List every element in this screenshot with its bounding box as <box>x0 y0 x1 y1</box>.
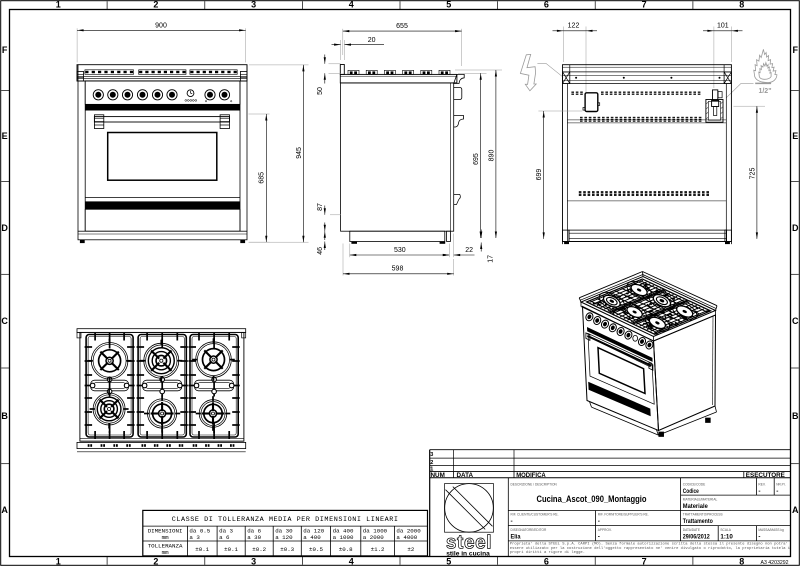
svg-text:46: 46 <box>317 247 324 255</box>
svg-text:725: 725 <box>749 168 756 180</box>
svg-text:4: 4 <box>349 0 354 10</box>
svg-text:8: 8 <box>739 556 744 566</box>
svg-text:5: 5 <box>446 0 451 10</box>
svg-text:±0.8: ±0.8 <box>339 546 353 553</box>
svg-text:F: F <box>792 45 798 55</box>
svg-text:945: 945 <box>296 147 303 159</box>
svg-text:±0.1: ±0.1 <box>224 546 238 553</box>
svg-text:1/2": 1/2" <box>758 88 771 95</box>
svg-text:29/06/2012: 29/06/2012 <box>683 534 710 541</box>
svg-text:2: 2 <box>430 460 433 466</box>
svg-text:±0.5: ±0.5 <box>309 546 323 553</box>
svg-text:530: 530 <box>394 247 406 254</box>
svg-text:Materiale: Materiale <box>683 503 708 510</box>
svg-text:RIF. FORNITORE/SUPPLIER'S RE.: RIF. FORNITORE/SUPPLIER'S RE. <box>598 513 649 517</box>
svg-text:890: 890 <box>488 150 495 162</box>
svg-text:CLASSE DI TOLLERANZA MEDIA PER: CLASSE DI TOLLERANZA MEDIA PER DIMENSION… <box>172 516 399 524</box>
svg-text:SCALA: SCALA <box>720 528 731 532</box>
svg-text:7: 7 <box>642 0 647 10</box>
svg-text:A: A <box>792 505 799 515</box>
svg-text:a 120: a 120 <box>275 534 293 541</box>
svg-text:mm: mm <box>162 534 169 541</box>
svg-text:±0.3: ±0.3 <box>280 546 294 553</box>
svg-text:a 3: a 3 <box>189 534 200 541</box>
svg-text:4: 4 <box>349 556 354 566</box>
svg-text:Trattamento: Trattamento <box>683 518 713 525</box>
svg-text:DESCRIZIONE / DESCRIPTION: DESCRIZIONE / DESCRIPTION <box>511 483 558 487</box>
svg-text:±2: ±2 <box>407 546 414 553</box>
svg-text:C: C <box>1 316 8 326</box>
svg-text:50: 50 <box>317 87 324 95</box>
svg-text:F: F <box>2 45 8 55</box>
svg-text:20: 20 <box>368 37 376 44</box>
svg-text:122: 122 <box>568 22 580 29</box>
svg-text:MASSA/MASS kg: MASSA/MASS kg <box>758 528 784 532</box>
svg-text:3: 3 <box>430 452 433 458</box>
svg-text:essere utilizzato per la costr: essere utilizzato per la costruzione del… <box>510 546 791 551</box>
svg-text:B: B <box>1 411 8 421</box>
svg-text:-: - <box>511 518 513 525</box>
svg-text:MODIFICA: MODIFICA <box>516 472 546 479</box>
svg-text:a 1000: a 1000 <box>333 534 354 541</box>
svg-text:-: - <box>758 488 760 495</box>
svg-text:DATA: DATA <box>457 472 474 479</box>
svg-text:Codice: Codice <box>683 488 699 495</box>
svg-text:E: E <box>792 131 798 141</box>
svg-text:695: 695 <box>473 153 480 165</box>
svg-text:a 2000: a 2000 <box>363 534 384 541</box>
svg-text:REV.: REV. <box>758 483 765 487</box>
svg-text:±1.2: ±1.2 <box>371 546 385 553</box>
svg-text:699: 699 <box>536 169 543 181</box>
svg-text:22: 22 <box>465 247 473 254</box>
svg-text:NUM: NUM <box>431 472 445 479</box>
svg-text:ESECUTORE: ESECUTORE <box>746 472 785 479</box>
svg-text:APPROV.: APPROV. <box>598 528 612 532</box>
svg-text:CODICE/CODE: CODICE/CODE <box>683 483 706 487</box>
svg-text:7: 7 <box>642 556 647 566</box>
svg-text:1: 1 <box>56 556 61 566</box>
svg-text:17: 17 <box>487 255 494 263</box>
svg-text:stile in cucina: stile in cucina <box>446 550 490 557</box>
svg-text:1:10: 1:10 <box>720 534 733 541</box>
svg-text:A3 4203292: A3 4203292 <box>761 560 789 566</box>
svg-text:RIF. CLIENTE/CUSTOMER'S RE.: RIF. CLIENTE/CUSTOMER'S RE. <box>511 513 559 517</box>
svg-text:NR.PI.: NR.PI. <box>776 483 786 487</box>
svg-text:TRATTAMENTO/PROCESS: TRATTAMENTO/PROCESS <box>683 513 723 517</box>
svg-text:2: 2 <box>153 556 158 566</box>
svg-text:B: B <box>792 411 799 421</box>
svg-text:±0.2: ±0.2 <box>252 546 266 553</box>
svg-text:-: - <box>758 534 760 541</box>
svg-text:-: - <box>776 488 778 495</box>
svg-text:900: 900 <box>155 22 167 29</box>
svg-text:87: 87 <box>317 203 324 211</box>
svg-text:5: 5 <box>446 556 451 566</box>
svg-text:-: - <box>598 534 600 541</box>
svg-text:Cucina_Ascot_090_Montaggio: Cucina_Ascot_090_Montaggio <box>537 494 647 504</box>
svg-text:598: 598 <box>392 266 404 273</box>
svg-text:mm: mm <box>162 549 169 556</box>
svg-text:1: 1 <box>56 0 61 10</box>
svg-text:a 400: a 400 <box>303 534 321 541</box>
svg-text:D: D <box>1 223 8 233</box>
svg-text:Elia: Elia <box>511 534 521 541</box>
svg-text:8: 8 <box>739 0 744 10</box>
svg-text:±0.1: ±0.1 <box>195 546 209 553</box>
svg-text:655: 655 <box>396 23 408 30</box>
svg-text:DATA/DATE: DATA/DATE <box>683 528 700 532</box>
svg-text:E: E <box>2 131 8 141</box>
svg-text:D: D <box>792 223 799 233</box>
svg-text:DISEGNATORE/EDITOR: DISEGNATORE/EDITOR <box>511 528 547 532</box>
svg-text:Proprieta' della STEEL S.p.A.: Proprieta' della STEEL S.p.A. CARPI (MO)… <box>510 542 788 547</box>
svg-text:propri diritti a rigore di leg: propri diritti a rigore di legge. <box>510 550 585 555</box>
svg-text:2: 2 <box>153 0 158 10</box>
svg-text:-: - <box>598 518 600 525</box>
svg-text:6: 6 <box>544 0 549 10</box>
svg-text:3: 3 <box>251 0 256 10</box>
svg-text:101: 101 <box>717 22 729 29</box>
svg-text:a 6: a 6 <box>219 534 230 541</box>
svg-text:a 30: a 30 <box>247 534 261 541</box>
svg-text:685: 685 <box>259 172 266 184</box>
svg-text:3: 3 <box>251 556 256 566</box>
svg-text:C: C <box>792 316 799 326</box>
svg-text:A: A <box>1 505 8 515</box>
svg-text:MATERIALE/MATERIAL: MATERIALE/MATERIAL <box>683 498 718 502</box>
svg-text:6: 6 <box>544 556 549 566</box>
svg-text:a 4000: a 4000 <box>396 534 417 541</box>
